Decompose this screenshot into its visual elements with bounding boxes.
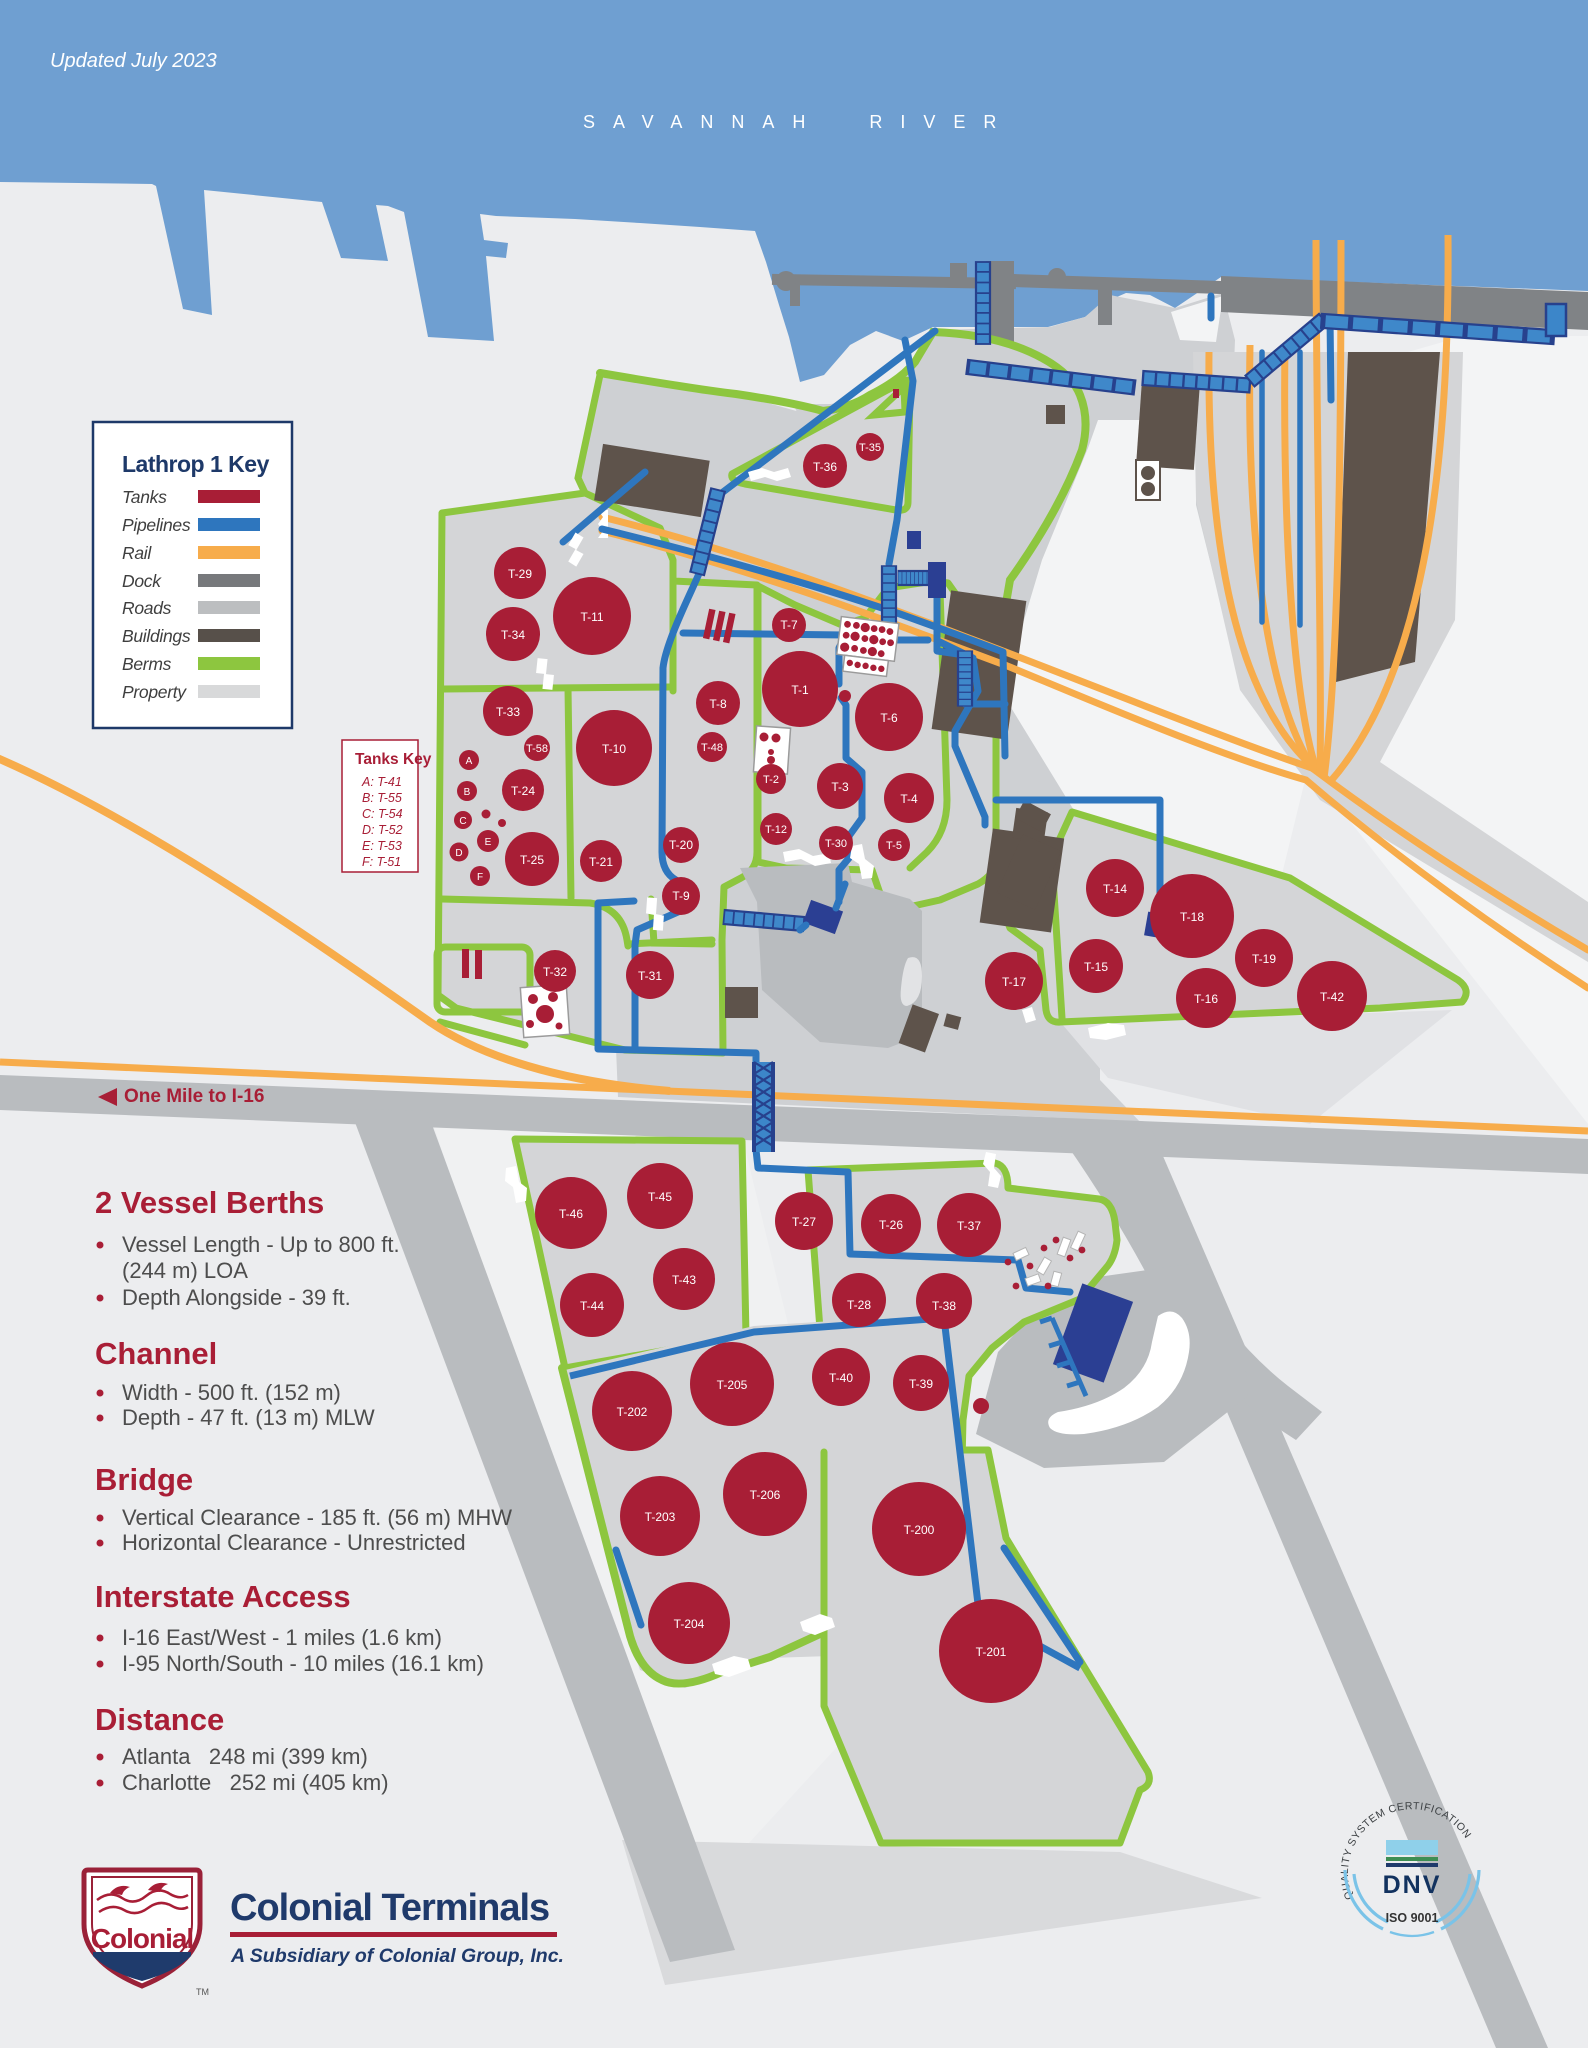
svg-text:T-39: T-39 (909, 1377, 933, 1391)
svg-text:Vertical Clearance - 185 ft. (: Vertical Clearance - 185 ft. (56 m) MHW (122, 1505, 512, 1530)
svg-text:Property: Property (122, 682, 187, 702)
svg-text:T-9: T-9 (672, 889, 690, 903)
svg-text:T-5: T-5 (886, 840, 902, 852)
svg-text:T-35: T-35 (859, 442, 881, 454)
svg-text:T-2: T-2 (763, 774, 779, 786)
svg-text:T-34: T-34 (501, 628, 525, 642)
svg-text:Channel: Channel (95, 1336, 217, 1371)
svg-text:F: F (477, 872, 483, 883)
svg-text:ISO 9001: ISO 9001 (1386, 1911, 1439, 1925)
svg-text:DNV: DNV (1383, 1871, 1442, 1899)
svg-text:T-8: T-8 (709, 697, 727, 711)
svg-text:D: D (455, 848, 462, 859)
svg-text:E: E (485, 837, 492, 848)
svg-text:T-200: T-200 (904, 1523, 935, 1537)
svg-text:T-3: T-3 (831, 780, 849, 794)
svg-text:I-16 East/West - 1 miles (1.6: I-16 East/West - 1 miles (1.6 km) (122, 1625, 442, 1650)
svg-text:Dock: Dock (122, 571, 162, 591)
svg-text:T-48: T-48 (701, 742, 723, 754)
svg-text:Distance: Distance (95, 1702, 224, 1737)
svg-text:Width - 500 ft. (152 m): Width - 500 ft. (152 m) (122, 1380, 341, 1405)
svg-text:Lathrop 1 Key: Lathrop 1 Key (122, 451, 270, 477)
svg-text:A: T-41: A: T-41 (361, 775, 402, 789)
svg-text:T-206: T-206 (750, 1488, 781, 1502)
svg-text:Colonial Terminals: Colonial Terminals (230, 1887, 549, 1929)
svg-text:T-18: T-18 (1180, 910, 1204, 924)
svg-text:T-19: T-19 (1252, 952, 1276, 966)
svg-text:T-15: T-15 (1084, 960, 1108, 974)
svg-text:I-95 North/South - 10 miles (1: I-95 North/South - 10 miles (16.1 km) (122, 1651, 484, 1676)
svg-text:F: T-51: F: T-51 (362, 855, 401, 869)
svg-text:T-205: T-205 (717, 1378, 748, 1392)
svg-text:T-21: T-21 (589, 855, 613, 869)
svg-text:T-204: T-204 (674, 1617, 705, 1631)
svg-text:2 Vessel Berths: 2 Vessel Berths (95, 1185, 324, 1220)
svg-text:T-40: T-40 (829, 1371, 853, 1385)
svg-text:T-202: T-202 (617, 1405, 648, 1419)
svg-text:Colonial: Colonial (91, 1923, 193, 1954)
svg-text:A Subsidiary of Colonial Group: A Subsidiary of Colonial Group, Inc. (230, 1945, 564, 1967)
svg-text:T-44: T-44 (580, 1299, 604, 1313)
svg-text:B: T-55: B: T-55 (362, 791, 402, 805)
svg-text:Pipelines: Pipelines (122, 515, 191, 535)
svg-text:T-30: T-30 (825, 838, 847, 850)
svg-text:T-7: T-7 (780, 618, 798, 632)
svg-text:T-20: T-20 (669, 838, 693, 852)
svg-text:Interstate Access: Interstate Access (95, 1579, 351, 1614)
svg-text:T-36: T-36 (813, 460, 837, 474)
svg-text:Rail: Rail (122, 543, 152, 563)
svg-text:T-14: T-14 (1103, 882, 1127, 896)
svg-text:Charlotte 252 mi (405 km): Charlotte 252 mi (405 km) (122, 1770, 389, 1795)
svg-text:T-45: T-45 (648, 1190, 672, 1204)
svg-text:T-201: T-201 (976, 1645, 1007, 1659)
svg-text:T-26: T-26 (879, 1218, 903, 1232)
svg-text:T-11: T-11 (580, 610, 603, 624)
svg-text:Berms: Berms (122, 654, 172, 674)
svg-text:T-6: T-6 (880, 711, 898, 725)
svg-text:Atlanta 248 mi (399 km): Atlanta 248 mi (399 km) (122, 1744, 368, 1769)
svg-text:Bridge: Bridge (95, 1462, 193, 1497)
svg-text:SAVANNAH RIVER: SAVANNAH RIVER (583, 112, 1014, 132)
svg-text:Roads: Roads (122, 598, 172, 618)
svg-text:T-17: T-17 (1002, 975, 1026, 989)
svg-text:One Mile to I-16: One Mile to I-16 (124, 1086, 264, 1107)
svg-text:T-203: T-203 (645, 1510, 676, 1524)
svg-text:T-43: T-43 (672, 1273, 696, 1287)
svg-text:B: B (464, 787, 471, 798)
svg-text:C: C (459, 816, 466, 827)
svg-text:Tanks: Tanks (122, 487, 167, 507)
svg-text:(244 m) LOA: (244 m) LOA (122, 1258, 248, 1283)
svg-text:Depth Alongside - 39 ft.: Depth Alongside - 39 ft. (122, 1285, 351, 1310)
svg-text:T-37: T-37 (957, 1219, 981, 1233)
svg-text:T-58: T-58 (526, 743, 548, 755)
svg-text:T-28: T-28 (847, 1298, 871, 1312)
svg-text:T-38: T-38 (932, 1299, 956, 1313)
svg-text:T-4: T-4 (900, 792, 918, 806)
svg-text:T-27: T-27 (792, 1215, 816, 1229)
svg-text:T-24: T-24 (511, 784, 535, 798)
svg-text:T-1: T-1 (791, 683, 809, 697)
svg-text:T-32: T-32 (543, 965, 567, 979)
svg-text:C: T-54: C: T-54 (362, 807, 403, 821)
svg-text:T-31: T-31 (638, 969, 662, 983)
svg-text:T-16: T-16 (1194, 992, 1218, 1006)
svg-text:T-25: T-25 (520, 853, 544, 867)
svg-text:T-42: T-42 (1320, 990, 1344, 1004)
svg-text:T-46: T-46 (559, 1207, 583, 1221)
svg-text:D: T-52: D: T-52 (362, 823, 403, 837)
svg-text:Updated July 2023: Updated July 2023 (50, 50, 217, 72)
svg-text:T-10: T-10 (602, 742, 626, 756)
svg-text:T-12: T-12 (765, 824, 787, 836)
svg-text:Horizontal Clearance - Unrestr: Horizontal Clearance - Unrestricted (122, 1530, 466, 1555)
svg-text:Depth - 47 ft. (13 m) MLW: Depth - 47 ft. (13 m) MLW (122, 1405, 375, 1430)
svg-text:Vessel Length - Up to 800 ft.: Vessel Length - Up to 800 ft. (122, 1232, 400, 1257)
svg-text:TM: TM (196, 1987, 209, 1997)
svg-text:A: A (466, 756, 473, 767)
svg-text:E: T-53: E: T-53 (362, 839, 402, 853)
svg-text:Tanks Key: Tanks Key (355, 751, 432, 768)
svg-text:T-33: T-33 (496, 705, 520, 719)
svg-text:T-29: T-29 (508, 567, 532, 581)
svg-text:Buildings: Buildings (122, 626, 191, 646)
